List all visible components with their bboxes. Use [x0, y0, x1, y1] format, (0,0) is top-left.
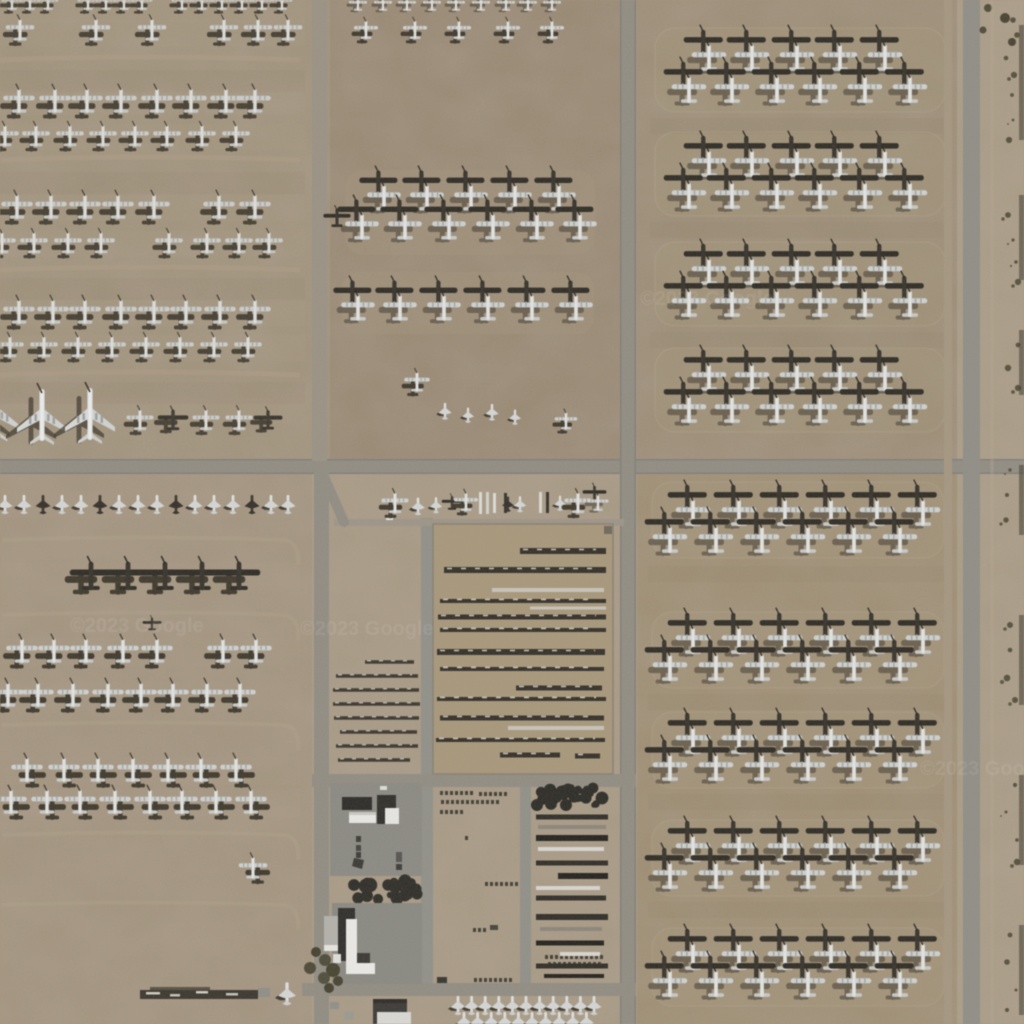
- svg-text:©2023 Google: ©2023 Google: [920, 758, 1024, 780]
- svg-text:©2023 Google: ©2023 Google: [70, 615, 204, 637]
- svg-text:©2023 Google: ©2023 Google: [300, 618, 434, 640]
- svg-text:©2023 Google: ©2023 Google: [640, 288, 774, 310]
